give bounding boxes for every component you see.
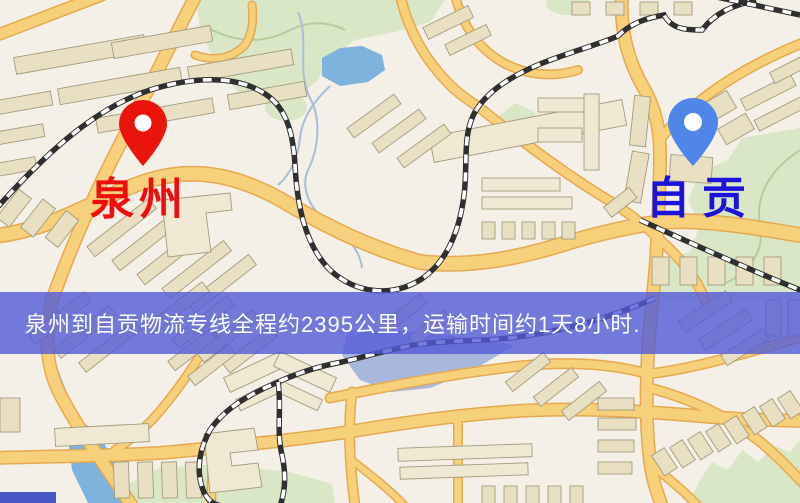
map-canvas: [0, 0, 800, 503]
route-info-text: 泉州到自贡物流专线全程约2395公里，运输时间约1天8小时.: [0, 307, 641, 339]
destination-city-label: 自贡: [646, 177, 758, 221]
route-info-banner: 泉州到自贡物流专线全程约2395公里，运输时间约1天8小时.: [0, 292, 800, 354]
logistics-route-map: 泉州 自贡 泉州到自贡物流专线全程约2395公里，运输时间约1天8小时.: [0, 0, 800, 503]
origin-city-label: 泉州: [90, 178, 188, 222]
